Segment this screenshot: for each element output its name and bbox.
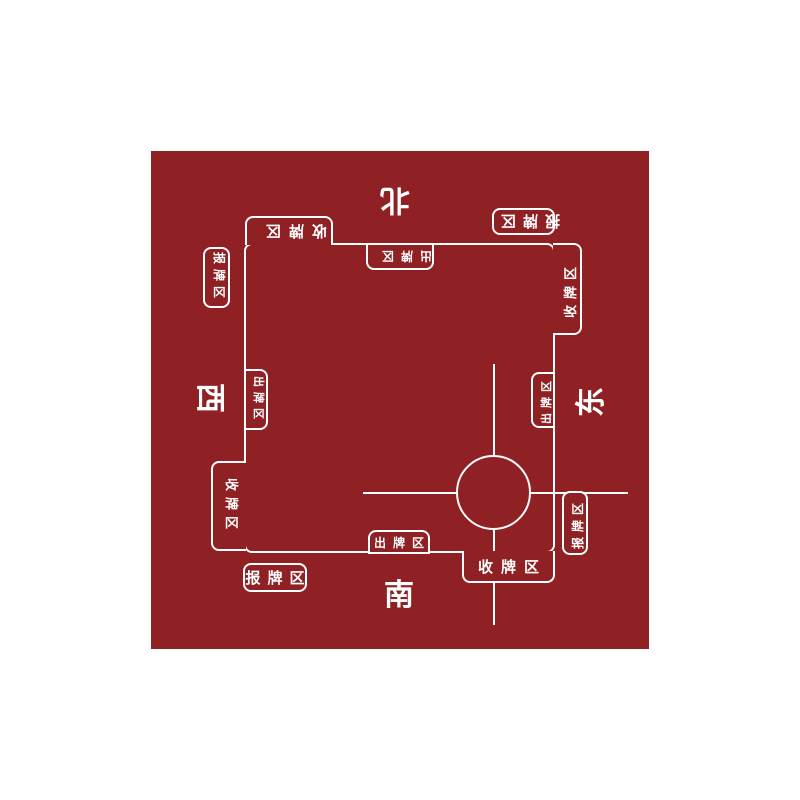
collect-zone-label-south: 收牌区 bbox=[478, 556, 547, 577]
play-zone-label-south: 出牌区 bbox=[374, 534, 431, 551]
collect-zone-tab-south: 收牌区 bbox=[462, 551, 555, 583]
report-zone-box-west: 报牌区 bbox=[203, 247, 230, 308]
play-zone-west: 出牌区 bbox=[244, 369, 268, 430]
report-zone-label-west: 报牌区 bbox=[211, 252, 228, 303]
report-zone-box-north: 报牌区 bbox=[492, 208, 555, 235]
direction-glyph-south: 南 bbox=[384, 570, 414, 614]
center-circle bbox=[456, 455, 531, 530]
report-zone-box-east: 报牌区 bbox=[562, 491, 588, 555]
play-zone-north: 出牌区 bbox=[366, 243, 434, 270]
divider-line-west bbox=[363, 492, 457, 494]
report-zone-label-east: 报牌区 bbox=[569, 497, 586, 548]
collect-zone-tab-north: 收牌区 bbox=[245, 216, 333, 245]
direction-glyph-west: 西 bbox=[191, 383, 235, 413]
collect-zone-tab-east: 收牌区 bbox=[553, 243, 582, 335]
report-zone-label-south: 报牌区 bbox=[245, 567, 311, 588]
collect-zone-label-east: 收牌区 bbox=[560, 260, 579, 317]
divider-line-north bbox=[493, 364, 495, 457]
product-image-canvas: 出牌区 出牌区 出牌区 出牌区 收牌区 收牌区 收牌区 收牌区 报牌区 报牌区 bbox=[0, 0, 800, 800]
collect-zone-tab-west: 收牌区 bbox=[211, 461, 246, 551]
play-zone-south: 出牌区 bbox=[368, 530, 430, 554]
direction-label-west: 西 bbox=[191, 380, 235, 416]
play-zone-label-east: 出牌区 bbox=[538, 376, 554, 424]
direction-label-south: 南 bbox=[377, 574, 421, 610]
direction-label-east: 东 bbox=[566, 384, 610, 420]
table-field-outline bbox=[244, 243, 555, 553]
report-zone-label-north: 报牌区 bbox=[494, 211, 560, 232]
play-zone-east: 出牌区 bbox=[531, 372, 555, 428]
mahjong-mat: 出牌区 出牌区 出牌区 出牌区 收牌区 收牌区 收牌区 收牌区 报牌区 报牌区 bbox=[151, 151, 649, 649]
collect-zone-label-north: 收牌区 bbox=[258, 221, 327, 242]
direction-glyph-east: 东 bbox=[566, 387, 610, 417]
play-zone-label-north: 出牌区 bbox=[375, 248, 432, 265]
direction-glyph-north: 北 bbox=[380, 181, 410, 225]
report-zone-box-south: 报牌区 bbox=[243, 563, 307, 592]
direction-label-north: 北 bbox=[373, 185, 417, 221]
play-zone-label-west: 出牌区 bbox=[251, 376, 267, 424]
collect-zone-label-west: 收牌区 bbox=[223, 477, 242, 534]
